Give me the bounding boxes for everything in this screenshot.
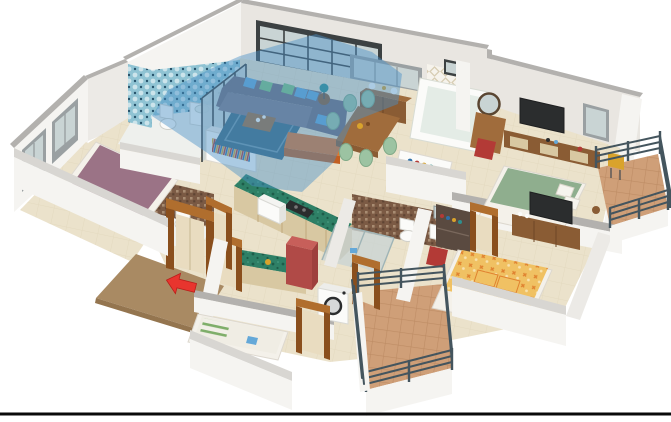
entry-door[interactable] [166,198,214,282]
floorplan-render [0,0,671,422]
bed3-wardrobe [436,204,470,254]
towel-blue [350,248,357,253]
wall-bathtub-west [456,60,470,132]
bed3-door[interactable] [470,202,498,257]
blue-tile-wall-west [128,64,152,128]
bed2-side-table [592,206,600,214]
refrigerator [286,236,318,290]
bathtub-small-window-glass [446,62,456,74]
kitchen-yellow-item [265,259,271,265]
bottom-rule [0,413,671,416]
bed2-red-chair [474,138,496,160]
